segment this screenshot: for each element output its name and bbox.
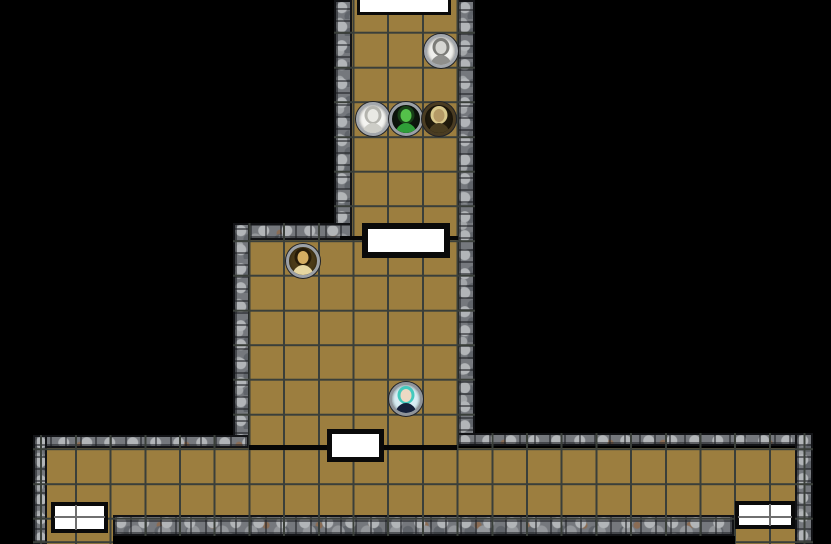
token-green-figure[interactable] (389, 102, 423, 136)
token-body (428, 123, 450, 136)
map-canvas[interactable] (0, 0, 831, 544)
door-southwest-exit[interactable] (51, 502, 108, 533)
token-head (436, 41, 447, 54)
wall-south-corridor-west-end (33, 435, 47, 544)
token-head (401, 389, 412, 402)
token-body (362, 123, 384, 136)
wall-south-corridor-east-end (795, 433, 813, 544)
wall-room-north (233, 223, 352, 240)
token-gold-headdress-figure[interactable] (422, 102, 456, 136)
token-teal-haired-figure[interactable] (389, 382, 423, 416)
token-head (368, 109, 379, 122)
token-head (434, 109, 445, 122)
wall-north-corridor-east (457, 0, 475, 445)
wall-south-corridor-north-east (457, 433, 813, 446)
door-panel-divider (769, 504, 771, 526)
token-body (395, 123, 417, 136)
wall-south-corridor-north-west (33, 435, 249, 448)
room-north-wall-line-west (340, 236, 364, 240)
token-body (430, 55, 452, 68)
wall-south-corridor-south (113, 515, 734, 536)
token-sepia-woman[interactable] (286, 244, 320, 278)
token-body (395, 403, 417, 416)
wall-north-corridor-west (334, 0, 352, 240)
token-engraved-portrait-man[interactable] (424, 34, 458, 68)
door-grid-line (738, 516, 792, 518)
token-sketch-portrait-man[interactable] (356, 102, 390, 136)
token-head (298, 251, 309, 264)
door-central-room-north[interactable] (362, 223, 450, 258)
dungeon-floor (0, 0, 831, 544)
door-grid-line (54, 516, 105, 518)
door-southeast-exit[interactable] (735, 501, 795, 529)
token-head (401, 109, 412, 122)
wall-room-west (233, 223, 250, 448)
door-north-corridor[interactable] (357, 0, 451, 15)
token-body (292, 265, 314, 278)
door-central-room-south[interactable] (327, 429, 384, 462)
